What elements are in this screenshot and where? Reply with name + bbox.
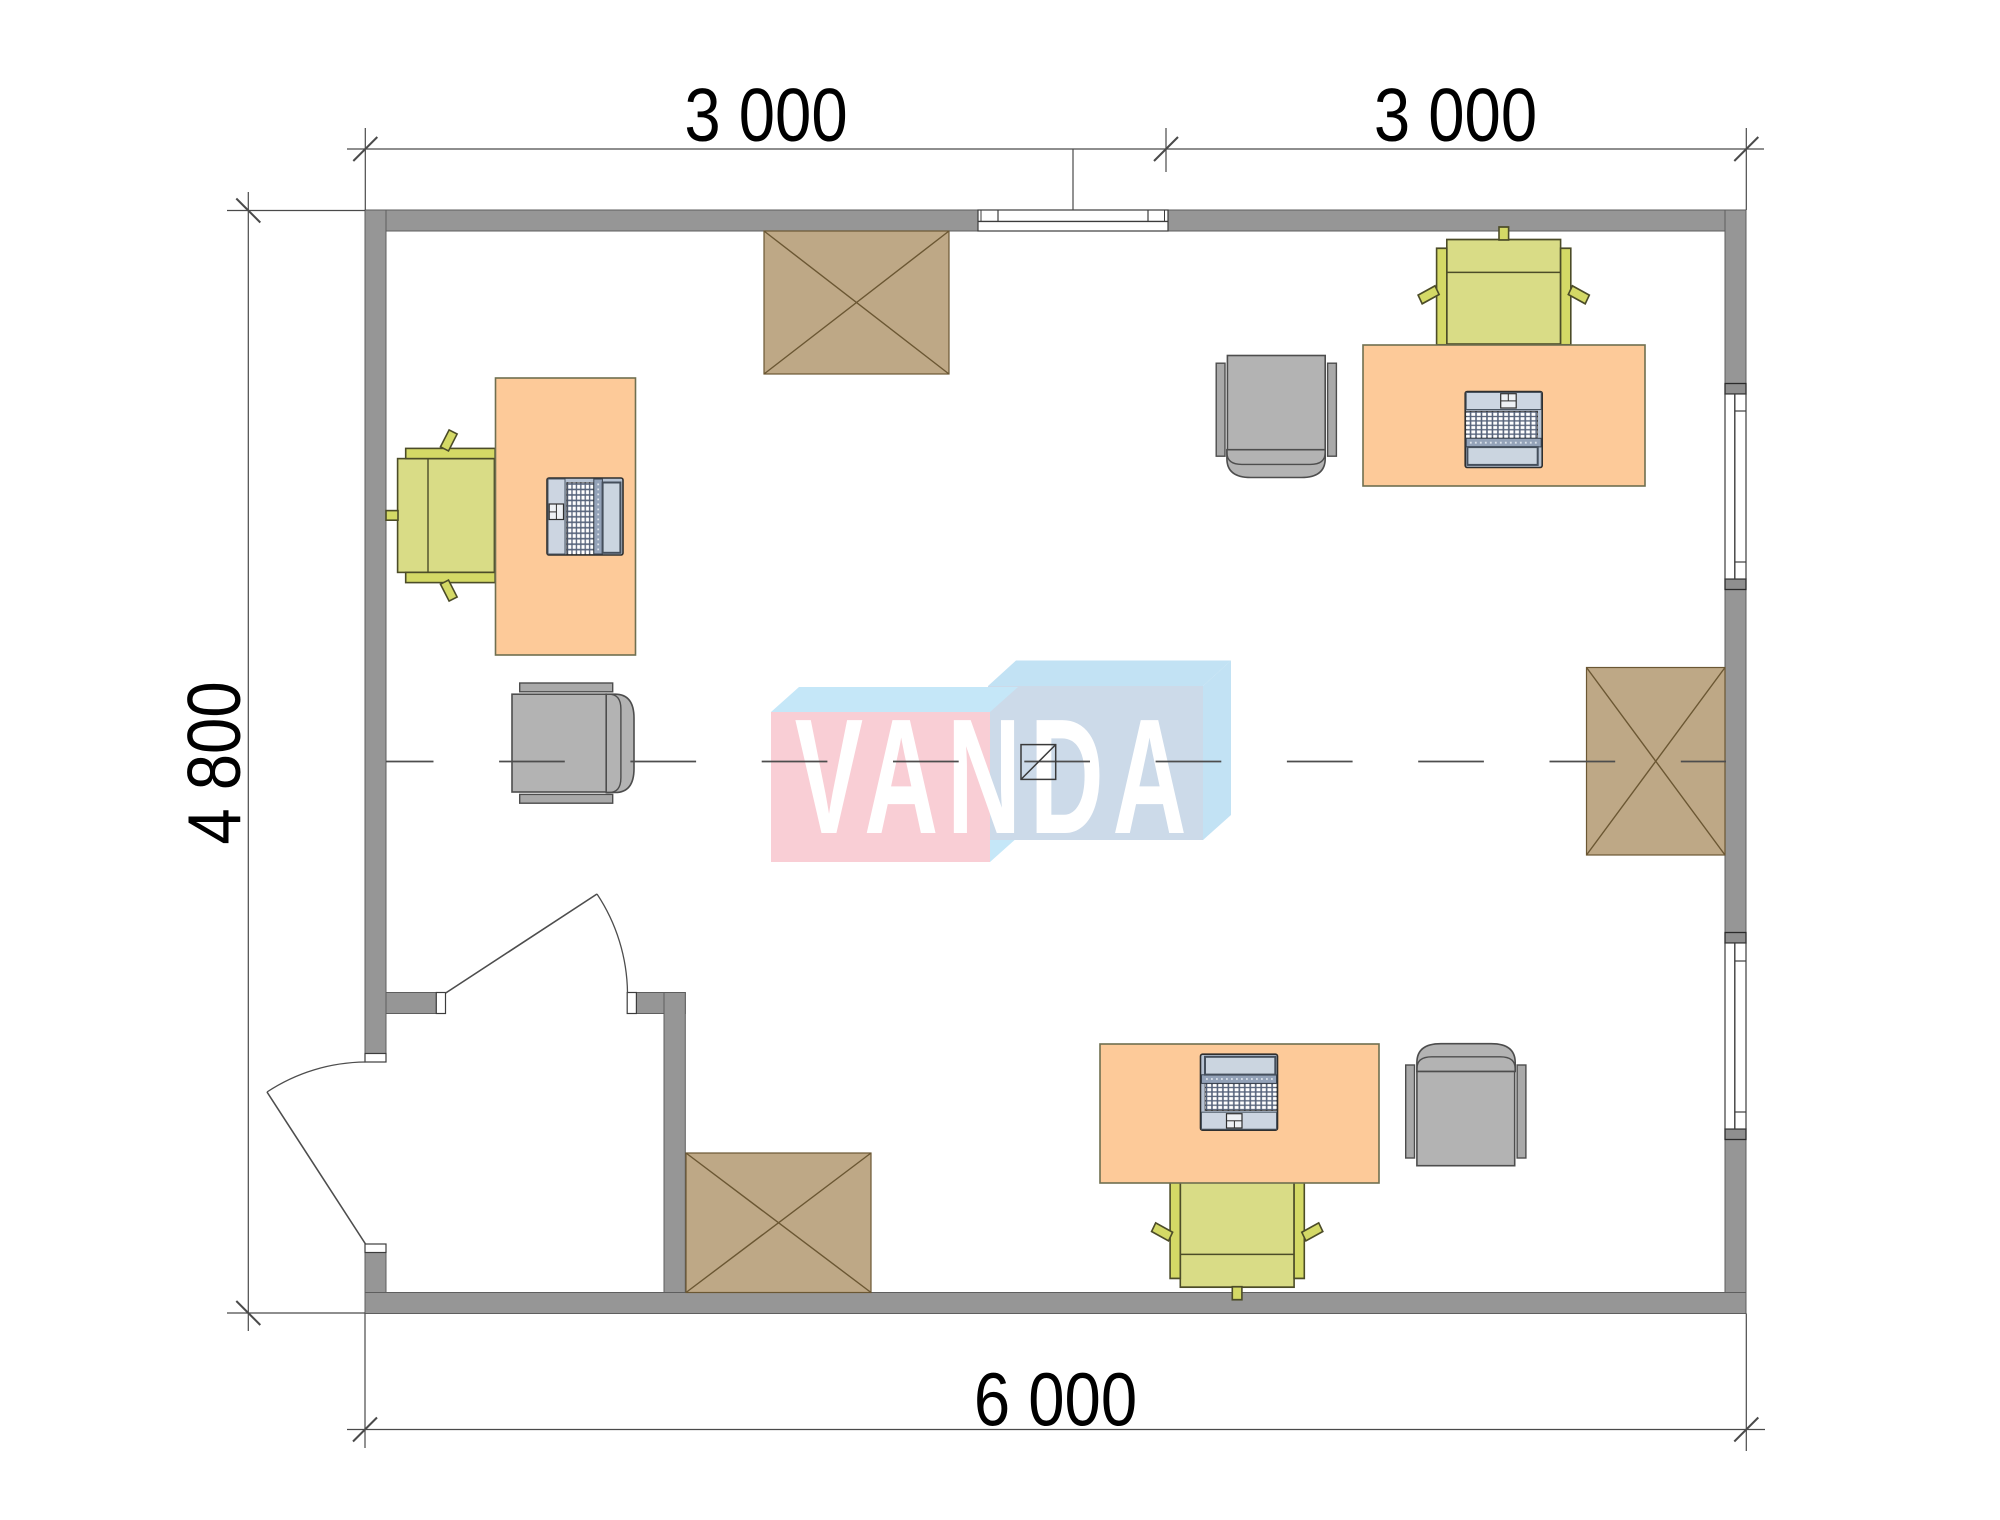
svg-text:VANDA: VANDA (795, 684, 1196, 867)
svg-text:3 000: 3 000 (684, 73, 847, 157)
svg-text:4 800: 4 800 (172, 681, 256, 844)
svg-text:3 000: 3 000 (1374, 73, 1537, 157)
svg-text:6 000: 6 000 (974, 1357, 1137, 1441)
